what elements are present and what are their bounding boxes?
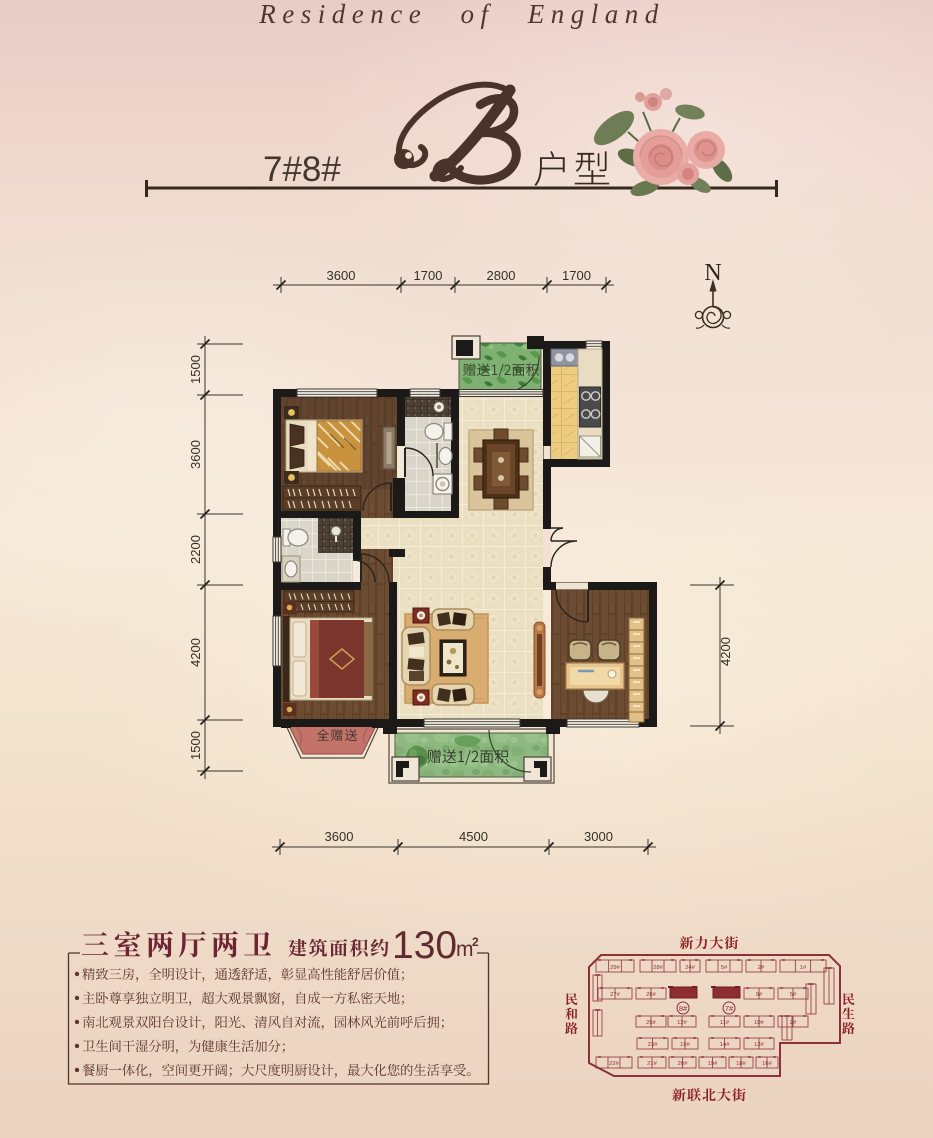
svg-text:1#: 1#: [800, 965, 807, 971]
svg-text:4500: 4500: [459, 829, 488, 844]
svg-text:4200: 4200: [188, 638, 203, 667]
svg-text:8#: 8#: [679, 1004, 688, 1013]
svg-text:18#: 18#: [736, 1061, 746, 1067]
svg-text:4200: 4200: [718, 637, 733, 666]
svg-text:27#: 27#: [610, 992, 620, 998]
svg-text:N: N: [704, 260, 721, 286]
svg-text:3600: 3600: [188, 440, 203, 469]
svg-text:9#: 9#: [756, 992, 763, 998]
svg-text:7#: 7#: [725, 1004, 734, 1013]
svg-text:130: 130: [392, 924, 457, 967]
svg-text:1700: 1700: [562, 268, 591, 283]
svg-text:10#: 10#: [754, 1020, 764, 1026]
svg-text:2#: 2#: [790, 1020, 797, 1026]
svg-text:m: m: [456, 938, 474, 961]
svg-text:1500: 1500: [188, 731, 203, 760]
svg-text:14#: 14#: [720, 1042, 730, 1048]
svg-text:25#: 25#: [646, 1020, 656, 1026]
svg-text:26#: 26#: [646, 992, 656, 998]
svg-text:23#: 23#: [648, 1042, 658, 1048]
svg-text:2#: 2#: [758, 965, 765, 971]
svg-text:15#: 15#: [680, 1042, 690, 1048]
svg-text:20#: 20#: [678, 1061, 688, 1067]
svg-text:29#: 29#: [610, 965, 620, 971]
svg-text:11#: 11#: [720, 1020, 730, 1026]
svg-text:3600: 3600: [325, 829, 354, 844]
svg-text:13#: 13#: [754, 1042, 764, 1048]
svg-text:16#: 16#: [762, 1061, 772, 1067]
svg-text:5#: 5#: [790, 992, 797, 998]
svg-text:1500: 1500: [188, 355, 203, 384]
svg-text:3000: 3000: [584, 829, 613, 844]
svg-text:21#: 21#: [647, 1061, 657, 1067]
svg-text:3600: 3600: [327, 268, 356, 283]
svg-text:28#: 28#: [653, 965, 663, 971]
svg-text:2: 2: [472, 935, 479, 949]
svg-text:Residence of England: Residence of England: [258, 0, 664, 29]
svg-text:5#: 5#: [721, 965, 728, 971]
svg-text:24#: 24#: [685, 965, 695, 971]
svg-text:2200: 2200: [188, 535, 203, 564]
svg-text:1700: 1700: [414, 268, 443, 283]
svg-text:7#8#: 7#8#: [263, 150, 341, 189]
svg-text:12#: 12#: [677, 1020, 687, 1026]
svg-text:2800: 2800: [487, 268, 516, 283]
svg-text:19#: 19#: [708, 1061, 718, 1067]
svg-text:22#: 22#: [609, 1061, 619, 1067]
